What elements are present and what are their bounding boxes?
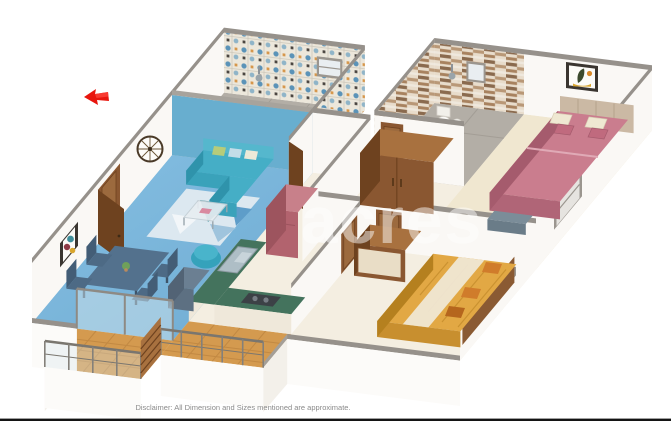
watermark: acres — [301, 183, 484, 257]
leaf-art — [566, 62, 598, 92]
bathroom-1-window — [317, 56, 343, 79]
bottom-border — [0, 419, 671, 421]
disclaimer-text: Disclaimer: All Dimension and Sizes ment… — [135, 403, 350, 412]
floor-plan-svg: acres Disclaimer: All Dimension and Size… — [0, 0, 671, 422]
wall-clock — [138, 137, 163, 162]
striped-tile-wall — [434, 38, 524, 114]
north-arrow — [84, 89, 109, 105]
bathroom-2-window — [466, 61, 485, 83]
floor-plan-render: acres Disclaimer: All Dimension and Size… — [0, 0, 671, 422]
